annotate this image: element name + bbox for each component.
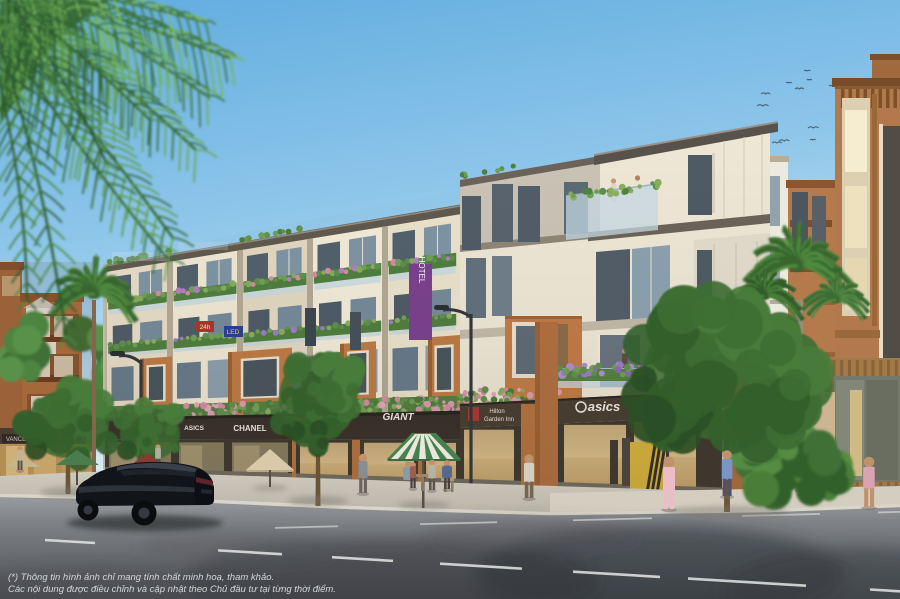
svg-text:Các nội dung được điều chỉnh v: Các nội dung được điều chỉnh và cập nhật… (8, 584, 336, 595)
svg-text:(*) Thông tin hình ảnh chỉ man: (*) Thông tin hình ảnh chỉ mang tính chấ… (8, 572, 274, 583)
